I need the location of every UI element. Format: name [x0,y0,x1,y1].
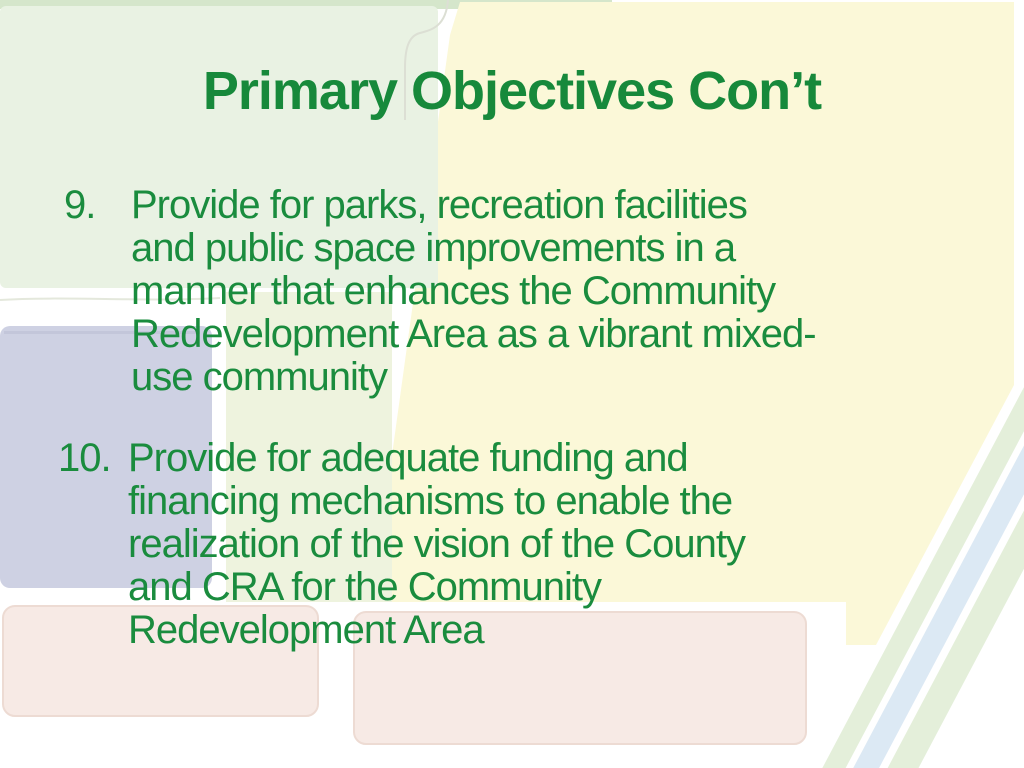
item-10-text: Provide for adequate funding and financi… [128,437,745,652]
item-10-number: 10. [58,437,111,480]
item-9-text: Provide for parks, recreation facilities… [131,184,816,399]
item-9-line: Redevelopment Area as a vibrant mixed- [131,313,816,356]
item-9-line: manner that enhances the Community [131,270,816,313]
item-9-line: use community [131,356,816,399]
item-10-line: Redevelopment Area [128,609,745,652]
item-10-line: realization of the vision of the County [128,523,745,566]
item-9-number: 9. [64,184,95,227]
slide: Primary Objectives Con’t 9. Provide for … [0,0,1024,768]
item-10-line: financing mechanisms to enable the [128,480,745,523]
slide-title: Primary Objectives Con’t [0,60,1024,122]
item-10-line: and CRA for the Community [128,566,745,609]
item-9-line: and public space improvements in a [131,227,816,270]
item-10-line: Provide for adequate funding and [128,437,745,480]
item-9-line: Provide for parks, recreation facilities [131,184,816,227]
